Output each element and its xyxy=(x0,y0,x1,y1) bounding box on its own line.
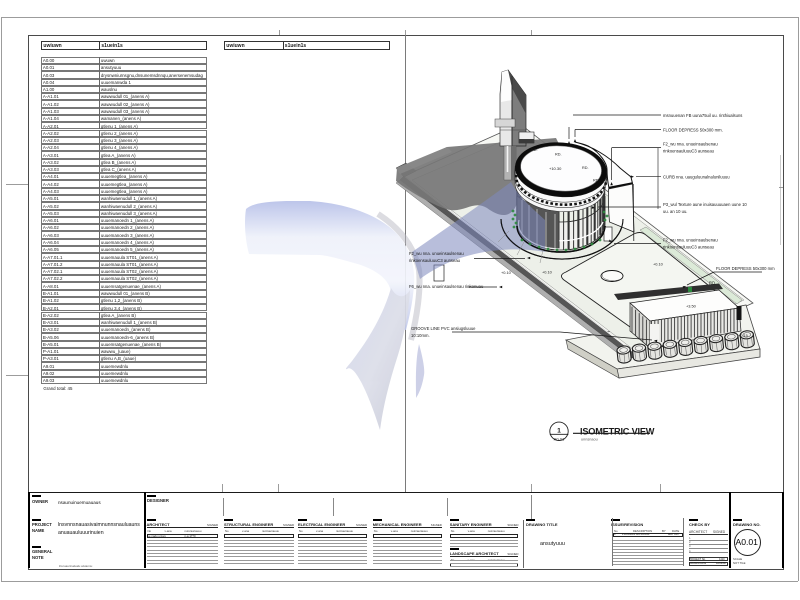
svg-text:+0.10: +0.10 xyxy=(653,262,664,267)
svg-text:1: 1 xyxy=(557,428,561,435)
svg-text:RD.: RD. xyxy=(555,153,562,157)
svg-text:RD.: RD. xyxy=(593,179,600,183)
svg-text:GROOVE LINE PVC ansiugsluuue: GROOVE LINE PVC ansiugsluuue xyxy=(411,326,476,331)
svg-text:+0.10: +0.10 xyxy=(501,270,512,275)
svg-text:RD.: RD. xyxy=(582,166,589,170)
svg-text:CURB nna. uauguluunalnaluniluu: CURB nna. uauguluunalnaluniluuuu xyxy=(663,175,730,180)
svg-text:A0.01: A0.01 xyxy=(554,436,565,441)
svg-text:F6_wu nna. unueinsaulsenau rin: F6_wu nna. unueinsaulsenau rinkonuau xyxy=(409,284,484,289)
svg-text:+3.50: +3.50 xyxy=(686,304,697,309)
svg-text:P3_wul Texture aune inuisauuuu: P3_wul Texture aune inuisauuuuaen uune 1… xyxy=(663,202,747,207)
svg-text:F2_wu nna. unueinsaulsenau: F2_wu nna. unueinsaulsenau xyxy=(663,238,718,243)
svg-text:rinkoensauluuuC3 aunseau: rinkoensauluuuC3 aunseau xyxy=(663,245,715,250)
svg-text:ISOMETRIC VIEW: ISOMETRIC VIEW xyxy=(580,426,655,436)
svg-text:unnsnaou: unnsnaou xyxy=(581,438,598,442)
svg-text:F2_wu nna. unueinsaulsenau: F2_wu nna. unueinsaulsenau xyxy=(663,142,718,147)
svg-text:RD.: RD. xyxy=(709,281,716,286)
svg-text:rinkoensauluuuC3 aunseau: rinkoensauluuuC3 aunseau xyxy=(409,258,461,263)
svg-text:rinkoensauluuuC3 aunseau: rinkoensauluuuC3 aunseau xyxy=(663,149,715,154)
svg-text:uu. an 10 uu.: uu. an 10 uu. xyxy=(663,209,687,214)
svg-text:FLOOR DEPRESS 50x300 mm.: FLOOR DEPRESS 50x300 mm. xyxy=(663,128,723,133)
svg-text:10:10mm.: 10:10mm. xyxy=(411,333,430,338)
svg-text:RD.: RD. xyxy=(531,148,538,152)
svg-text:+0.15: +0.15 xyxy=(738,333,748,338)
svg-text:+10.30: +10.30 xyxy=(549,166,562,171)
svg-text:F2_wu nna. unueinsaulsenau: F2_wu nna. unueinsaulsenau xyxy=(409,251,464,256)
svg-text:msnuuenan FB uuna75uil uu. rin: msnuuenan FB uuna75uil uu. rinthiualsuns xyxy=(663,113,742,118)
svg-text:FLOOR DEPRESS 50x300 mm: FLOOR DEPRESS 50x300 mm xyxy=(716,266,775,271)
svg-text:+0.10: +0.10 xyxy=(542,270,553,275)
